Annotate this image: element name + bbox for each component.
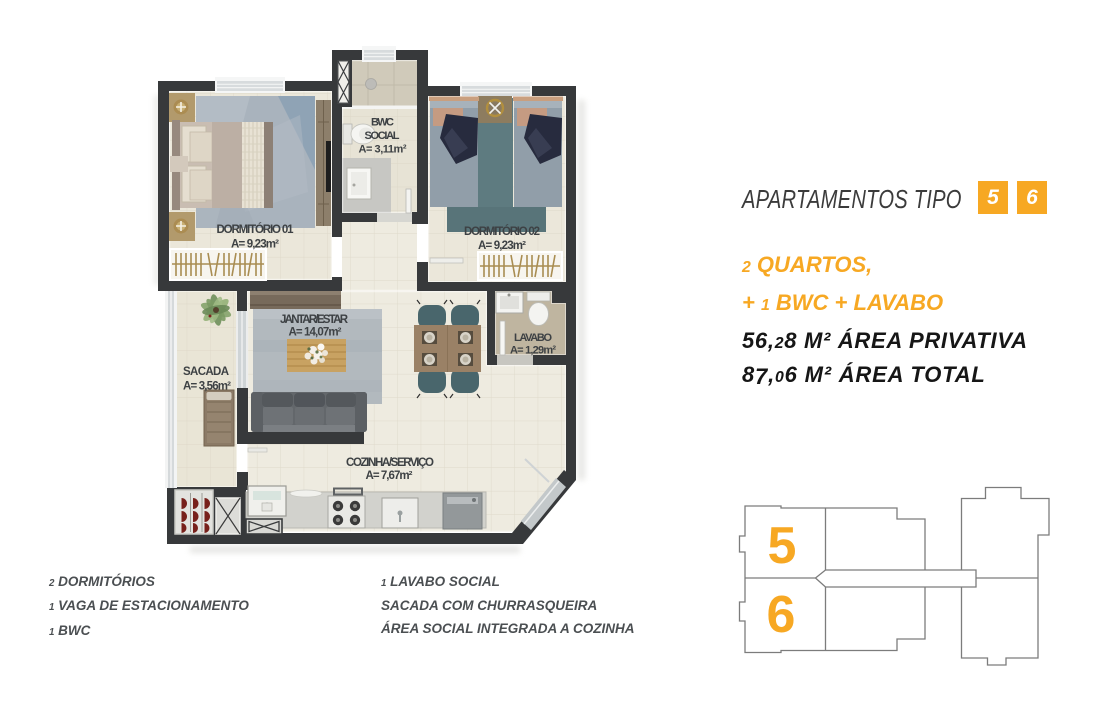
svg-text:A= 9,23m²: A= 9,23m² — [478, 240, 526, 252]
svg-text:DORMITÓRIO 02: DORMITÓRIO 02 — [464, 225, 540, 238]
svg-text:6: 6 — [767, 586, 796, 644]
svg-text:5: 5 — [768, 517, 797, 575]
svg-text:SOCIAL: SOCIAL — [365, 130, 400, 142]
svg-text:DORMITÓRIO 01: DORMITÓRIO 01 — [217, 223, 295, 236]
svg-text:BWC: BWC — [371, 117, 394, 129]
svg-text:A= 9,23m²: A= 9,23m² — [231, 239, 279, 251]
svg-text:A= 7,67m²: A= 7,67m² — [366, 470, 413, 482]
svg-text:A= 3,11m²: A= 3,11m² — [359, 144, 407, 156]
svg-text:SACADA: SACADA — [183, 366, 229, 378]
svg-text:A= 14,07m²: A= 14,07m² — [289, 327, 342, 339]
svg-text:A= 3,56m²: A= 3,56m² — [183, 381, 231, 393]
svg-text:A= 1,29m²: A= 1,29m² — [510, 345, 556, 357]
svg-text:LAVABO: LAVABO — [514, 332, 552, 344]
svg-text:COZINHA/SERVIÇO: COZINHA/SERVIÇO — [346, 457, 434, 469]
svg-text:JANTAR/ESTAR: JANTAR/ESTAR — [280, 314, 349, 326]
